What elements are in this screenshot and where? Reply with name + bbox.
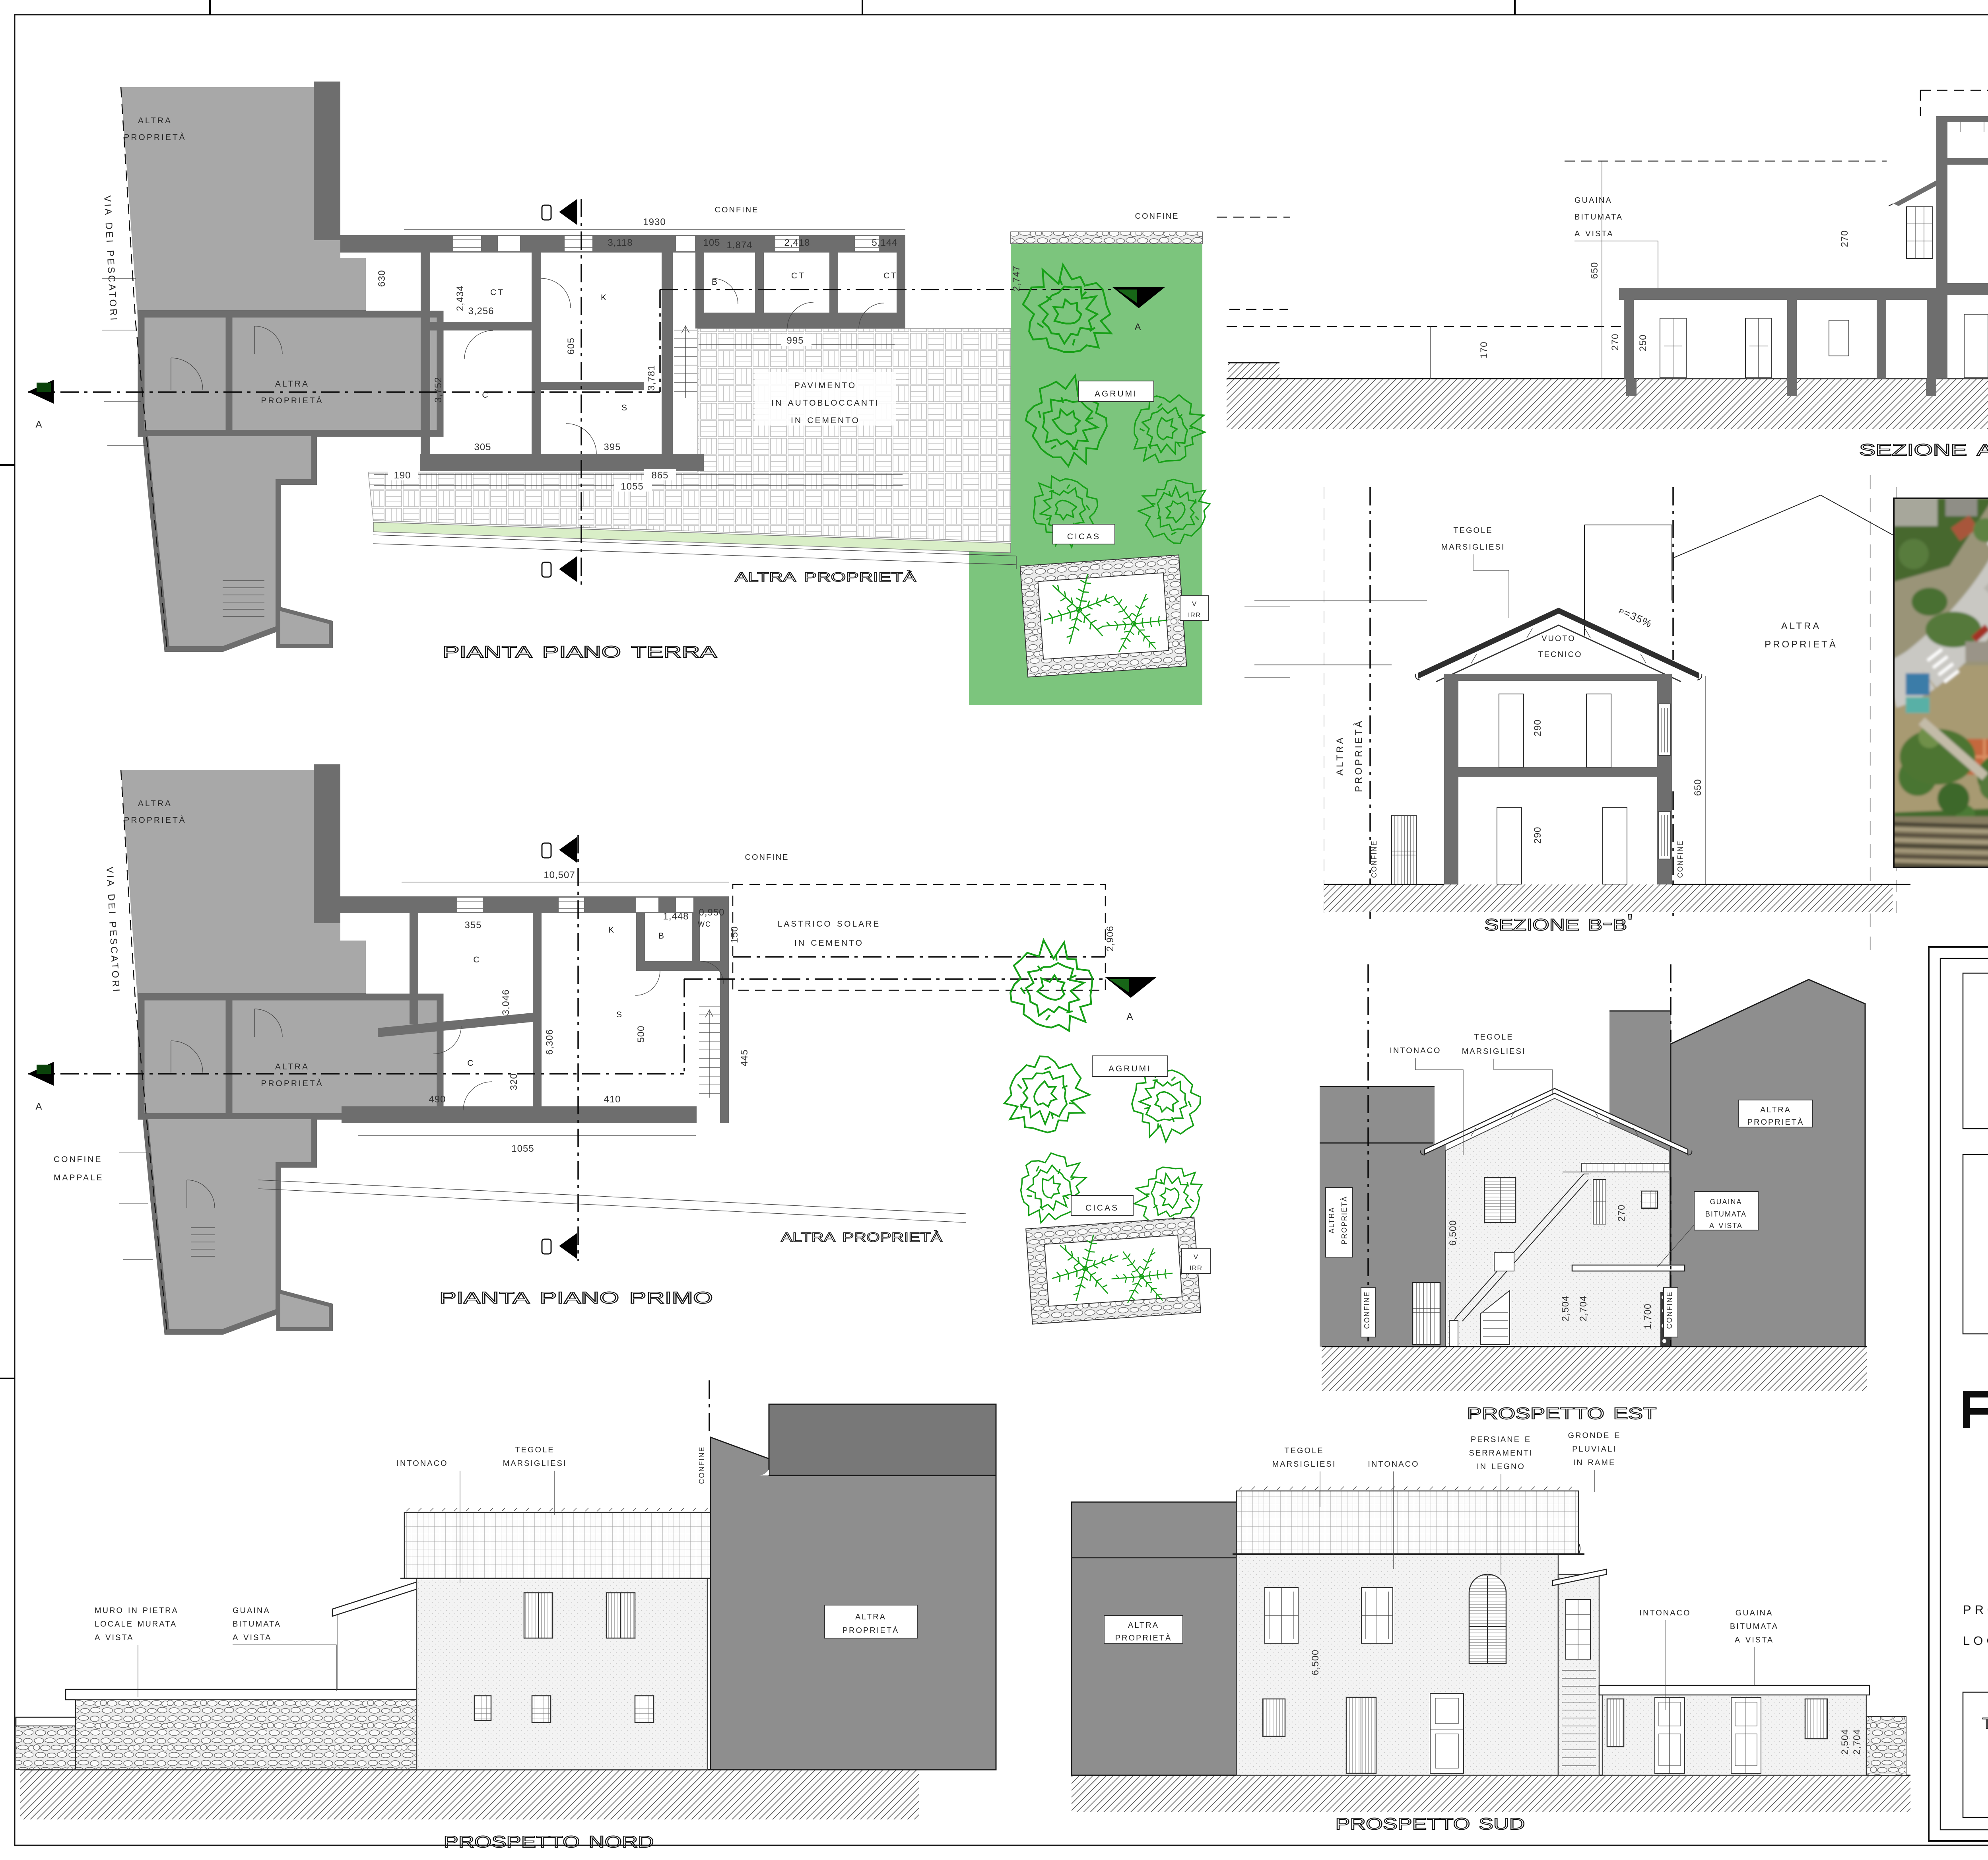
svg-text:0,950: 0,950	[699, 907, 724, 918]
svg-text:altra: altra	[1128, 1618, 1159, 1630]
svg-text:k: k	[601, 290, 608, 303]
svg-text:tegole: tegole	[1474, 1030, 1513, 1042]
svg-text:confine: confine	[1367, 840, 1379, 878]
svg-text:ct: ct	[490, 285, 505, 298]
svg-text:prospetto est: prospetto est	[1467, 1398, 1657, 1424]
svg-text:k: k	[608, 922, 615, 935]
svg-text:410: 410	[604, 1094, 621, 1105]
svg-text:guaina: guaina	[1710, 1195, 1742, 1207]
svg-text:a vista: a vista	[1709, 1219, 1743, 1230]
svg-text:persiane e: persiane e	[1471, 1432, 1531, 1444]
svg-text:a: a	[35, 416, 44, 431]
svg-text:a vista: a vista	[95, 1630, 134, 1642]
svg-text:ct: ct	[791, 268, 806, 281]
svg-text:1930: 1930	[643, 217, 666, 227]
svg-text:altra: altra	[138, 796, 172, 809]
svg-text:2,747: 2,747	[1011, 265, 1022, 291]
svg-text:marsigliesi: marsigliesi	[1441, 540, 1505, 552]
svg-text:270: 270	[1610, 333, 1621, 350]
svg-text:tegole: tegole	[515, 1442, 554, 1455]
svg-text:agrumi: agrumi	[1109, 1061, 1151, 1074]
svg-text:v: v	[1194, 1251, 1198, 1261]
svg-text:altra: altra	[1760, 1102, 1791, 1115]
svg-text:3,046: 3,046	[501, 989, 511, 1015]
svg-text:cicas: cicas	[1085, 1200, 1119, 1213]
svg-text:altra: altra	[1781, 617, 1821, 632]
svg-text:395: 395	[604, 442, 621, 453]
svg-text:tegole: tegole	[1453, 523, 1493, 535]
svg-text:150: 150	[729, 926, 740, 943]
svg-text:guaina: guaina	[1736, 1605, 1773, 1618]
svg-text:630: 630	[377, 270, 387, 287]
svg-text:proprietà: proprietà	[1115, 1631, 1172, 1643]
svg-text:105: 105	[703, 237, 720, 248]
svg-text:2,434: 2,434	[455, 285, 466, 311]
svg-text:170: 170	[1479, 341, 1489, 358]
svg-text:s: s	[621, 400, 629, 413]
svg-text:confine: confine	[1673, 840, 1685, 878]
svg-text:confine: confine	[1135, 209, 1179, 221]
svg-text:b: b	[658, 928, 666, 941]
svg-text:irr: irr	[1190, 1262, 1202, 1273]
svg-text:mappale: mappale	[54, 1170, 104, 1183]
svg-text:a: a	[35, 1098, 44, 1113]
svg-text:1055: 1055	[511, 1143, 534, 1154]
svg-text:a vista: a vista	[233, 1630, 272, 1642]
svg-text:serramenti: serramenti	[1469, 1446, 1533, 1458]
svg-text:pavimento: pavimento	[794, 378, 856, 391]
svg-text:270: 270	[1616, 1204, 1627, 1221]
svg-text:a: a	[1126, 1008, 1135, 1023]
svg-text:guaina: guaina	[1574, 193, 1612, 205]
svg-text:a: a	[1134, 318, 1143, 333]
svg-text:confine: confine	[695, 1446, 707, 1484]
svg-text:3,118: 3,118	[608, 237, 633, 248]
svg-text:località: via dei pescatori n.: località: via dei pescatori n. 25	[1963, 1629, 1988, 1649]
svg-text:irr: irr	[1188, 609, 1201, 620]
svg-text:proprietà: proprietà	[261, 393, 323, 406]
svg-text:3,256: 3,256	[468, 306, 494, 317]
svg-text:995: 995	[786, 335, 804, 346]
svg-text:2,418: 2,418	[784, 237, 810, 248]
svg-text:in legno: in legno	[1477, 1459, 1525, 1471]
svg-text:altra: altra	[1331, 736, 1346, 776]
svg-text:bitumata: bitumata	[1574, 210, 1623, 222]
svg-text:proprietà: proprietà	[124, 812, 186, 826]
svg-text:confine: confine	[1662, 1291, 1674, 1329]
svg-text:marsigliesi: marsigliesi	[1462, 1044, 1526, 1056]
svg-text:290: 290	[1532, 826, 1543, 844]
svg-text:in rame: in rame	[1573, 1455, 1616, 1467]
svg-text:tegole: tegole	[1284, 1443, 1324, 1456]
svg-text:proprietà: proprietà	[1337, 1196, 1349, 1244]
svg-text:proprietà: proprietà	[1350, 719, 1365, 792]
svg-text:pianta piano primo: pianta piano primo	[439, 1283, 713, 1308]
svg-text:confine: confine	[715, 202, 759, 215]
svg-text:a vista: a vista	[1735, 1633, 1774, 1645]
svg-text:5,144: 5,144	[872, 237, 897, 248]
svg-text:altra: altra	[275, 376, 309, 389]
svg-text:490: 490	[429, 1094, 446, 1105]
svg-text:10,507: 10,507	[544, 870, 575, 880]
svg-text:1,874: 1,874	[726, 240, 752, 251]
svg-text:in cemento: in cemento	[791, 413, 860, 426]
svg-text:altra proprietà: altra proprietà	[781, 1225, 943, 1246]
svg-text:1,700: 1,700	[1642, 1303, 1653, 1329]
svg-text:3,752: 3,752	[433, 377, 444, 402]
svg-text:a vista: a vista	[1574, 226, 1613, 239]
svg-text:intonaco: intonaco	[1368, 1457, 1419, 1469]
svg-text:3,781: 3,781	[646, 365, 657, 391]
svg-text:bitumata: bitumata	[1730, 1619, 1778, 1631]
svg-text:320: 320	[509, 1073, 519, 1090]
svg-text:bitumata: bitumata	[233, 1617, 281, 1629]
svg-text:confine: confine	[1360, 1291, 1372, 1329]
svg-text:650: 650	[1693, 779, 1703, 796]
svg-text:650: 650	[1589, 262, 1600, 279]
svg-text:pianta piano terra: pianta piano terra	[443, 637, 717, 663]
svg-text:in cemento: in cemento	[794, 935, 864, 948]
svg-text:2,704: 2,704	[1852, 1729, 1862, 1755]
svg-text:1,448: 1,448	[663, 911, 689, 922]
svg-text:tecnico: tecnico	[1538, 647, 1582, 659]
svg-text:vuoto: vuoto	[1541, 631, 1576, 643]
svg-text:proprietà: proprietà	[1765, 636, 1838, 651]
svg-text:intonaco: intonaco	[396, 1456, 448, 1468]
svg-text:proprietà: sa.ma. ingegneria s: proprietà: sa.ma. ingegneria s.r.l.	[1963, 1598, 1988, 1618]
svg-text:v: v	[1192, 598, 1197, 608]
svg-text:c: c	[482, 387, 489, 400]
svg-text:2,504: 2,504	[1840, 1729, 1850, 1755]
svg-text:intonaco: intonaco	[1390, 1043, 1441, 1055]
svg-text:proprietà: proprietà	[843, 1623, 899, 1635]
svg-text:muro in pietra: muro in pietra	[95, 1603, 179, 1615]
svg-text:agrumi: agrumi	[1095, 386, 1138, 399]
svg-text:500: 500	[636, 1025, 646, 1042]
svg-text:1055: 1055	[621, 481, 643, 492]
svg-text:190: 190	[394, 470, 411, 481]
svg-text:355: 355	[464, 920, 481, 931]
svg-text:proprietà: proprietà	[261, 1076, 323, 1089]
svg-text:altra: altra	[275, 1059, 309, 1072]
svg-text:sezione a-a': sezione a-a'	[1859, 435, 1988, 461]
svg-text:locale murata: locale murata	[95, 1617, 177, 1629]
svg-text:cicas: cicas	[1067, 529, 1101, 542]
svg-text:in autobloccanti: in autobloccanti	[771, 395, 879, 408]
svg-text:290: 290	[1532, 719, 1543, 736]
svg-text:prospetto sud: prospetto sud	[1336, 1809, 1525, 1835]
svg-text:c: c	[467, 1055, 475, 1069]
svg-text:b: b	[712, 274, 719, 288]
svg-text:confine: confine	[745, 850, 789, 862]
svg-text:sezione b-b': sezione b-b'	[1484, 910, 1633, 935]
svg-text:bitumata: bitumata	[1705, 1207, 1747, 1219]
svg-text:tavola: tavola	[1982, 1709, 1988, 1733]
svg-text:2,504: 2,504	[1560, 1295, 1571, 1321]
svg-text:865: 865	[651, 470, 668, 481]
svg-text:6,500: 6,500	[1310, 1649, 1321, 1675]
svg-text:2,704: 2,704	[1578, 1295, 1589, 1321]
svg-text:250: 250	[1638, 334, 1648, 351]
svg-text:marsigliesi: marsigliesi	[1272, 1457, 1336, 1469]
svg-text:wc: wc	[698, 917, 711, 929]
svg-text:605: 605	[566, 337, 577, 354]
svg-text:ct: ct	[883, 268, 898, 281]
svg-text:s: s	[616, 1007, 623, 1020]
svg-text:altra proprietà: altra proprietà	[735, 565, 916, 585]
svg-text:305: 305	[474, 442, 491, 453]
svg-text:270: 270	[1839, 230, 1850, 247]
svg-text:confine: confine	[54, 1152, 103, 1165]
svg-text:altra: altra	[1324, 1207, 1336, 1234]
svg-text:2,906: 2,906	[1105, 925, 1116, 951]
svg-text:445: 445	[739, 1049, 750, 1066]
svg-text:lastrico solare: lastrico solare	[778, 916, 881, 929]
svg-text:c: c	[473, 952, 481, 965]
svg-text:proprietà: proprietà	[124, 130, 186, 143]
svg-text:altra: altra	[855, 1609, 886, 1622]
svg-text:altra: altra	[138, 113, 172, 126]
svg-text:prospetto nord: prospetto nord	[444, 1827, 654, 1852]
svg-text:marsigliesi: marsigliesi	[503, 1456, 567, 1468]
svg-text:gronde e: gronde e	[1568, 1428, 1621, 1440]
svg-text:6,500: 6,500	[1448, 1220, 1458, 1246]
svg-text:pluviali: pluviali	[1572, 1442, 1617, 1454]
svg-text:guaina: guaina	[233, 1603, 270, 1615]
svg-text:proprietà: proprietà	[1747, 1115, 1804, 1127]
svg-text:intonaco: intonaco	[1639, 1605, 1691, 1618]
svg-text:6,306: 6,306	[544, 1029, 555, 1055]
